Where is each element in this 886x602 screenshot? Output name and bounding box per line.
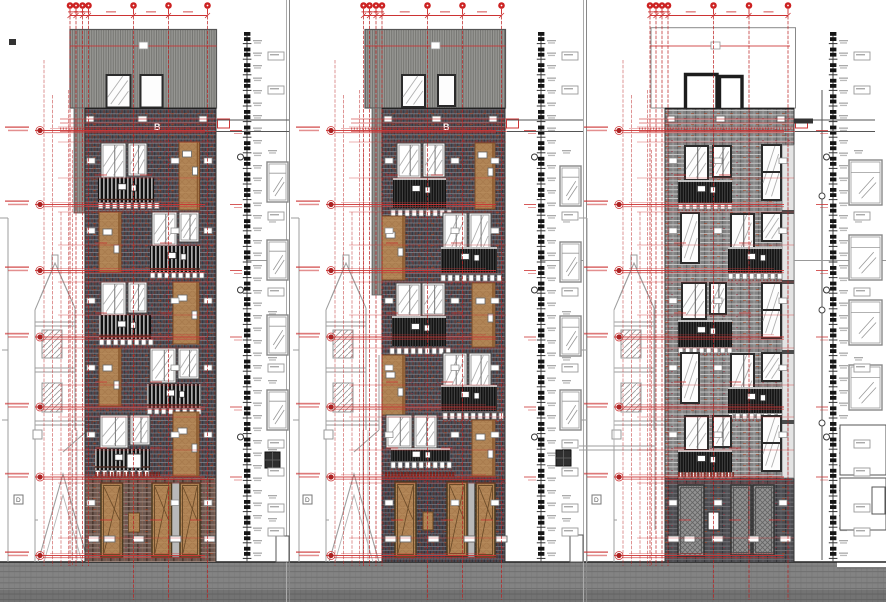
svg-text:D: D	[305, 497, 310, 504]
svg-text:D: D	[594, 497, 599, 504]
svg-text:D: D	[16, 497, 21, 504]
